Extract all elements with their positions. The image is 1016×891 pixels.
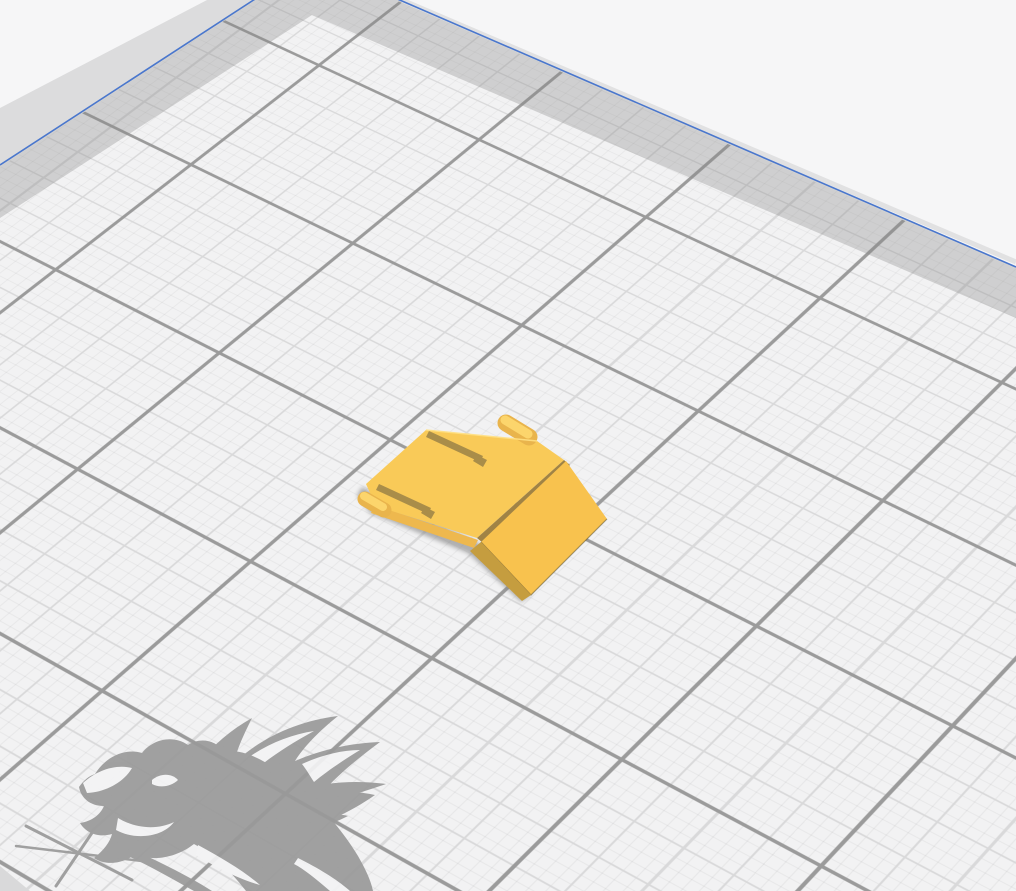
plate-back-rim: [402, 0, 1016, 262]
plate-corner-wedge: [0, 866, 30, 891]
model-part[interactable]: [357, 420, 607, 602]
slicer-3d-viewport[interactable]: [0, 0, 1016, 891]
flyingbear-logo: [16, 716, 386, 891]
